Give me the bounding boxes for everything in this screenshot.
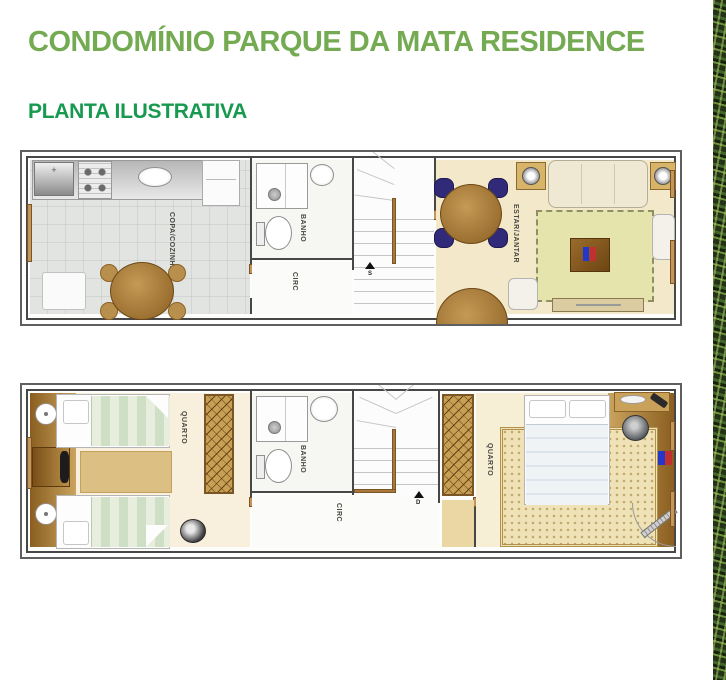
bedroom2-window	[670, 491, 675, 527]
floorplan-ground: COPA/COZINHA BANHO CIRC S	[20, 150, 682, 326]
stair-rail	[392, 198, 396, 264]
bedroom1-window	[27, 437, 32, 489]
kitchen-cabinet	[42, 272, 86, 310]
room-label-living: ESTAR/JANTAR	[512, 204, 519, 263]
chair	[180, 519, 206, 543]
wall	[250, 158, 252, 264]
stool	[622, 415, 649, 441]
vegetation-photo-strip	[713, 0, 726, 680]
laundry-tank	[34, 162, 74, 196]
shower-head	[268, 421, 281, 434]
stair-treads	[354, 437, 438, 495]
circulation-floor	[252, 495, 438, 547]
stair-down-label: D	[416, 500, 420, 506]
stove	[78, 161, 112, 199]
shower-box	[256, 163, 308, 209]
room-label-bedroom2: QUARTO	[486, 443, 493, 476]
stair-down-arrow-icon	[414, 491, 424, 498]
nightstand-lamp	[35, 503, 57, 525]
speaker-icon	[522, 167, 540, 185]
bedroom1-rug	[80, 451, 172, 493]
circulation-floor	[252, 262, 352, 314]
pillow	[569, 400, 606, 418]
sideboard	[552, 298, 644, 312]
dining-table	[440, 184, 502, 244]
double-bed	[524, 395, 610, 505]
room-label-bath: BANHO	[299, 214, 306, 242]
mirror	[620, 395, 646, 404]
room-label-kitchen: COPA/COZINHA	[168, 212, 175, 272]
closet-floor	[442, 500, 474, 547]
toilet	[265, 216, 292, 250]
fridge-cabinet	[202, 160, 240, 206]
bedspread	[526, 424, 608, 505]
wall	[252, 491, 352, 493]
sofa	[548, 160, 648, 208]
bedspread-fold	[146, 396, 168, 418]
stair-up-label: S	[368, 271, 372, 277]
tv-icon	[590, 247, 596, 261]
room-label-circ: CIRC	[291, 272, 298, 291]
room-label-bedroom1: QUARTO	[180, 411, 187, 444]
kitchen-table	[110, 262, 174, 320]
toilet-tank	[256, 222, 265, 246]
tv-icon	[658, 451, 665, 465]
nightstand-lamp	[35, 403, 57, 425]
room-label-bath: BANHO	[299, 445, 306, 473]
wall	[438, 391, 440, 503]
tv-icon	[60, 451, 69, 483]
page: CONDOMÍNIO PARQUE DA MATA RESIDENCE PLAN…	[0, 0, 726, 680]
bedroom2-window	[670, 421, 675, 451]
stair-up-arrow-icon	[365, 262, 375, 269]
tv-icon	[665, 451, 672, 465]
bathroom-sink	[310, 396, 338, 422]
living-window	[670, 240, 675, 284]
bathroom-sink	[310, 164, 334, 186]
kitchen-window	[27, 204, 32, 262]
living-window	[670, 170, 675, 198]
floorplan-upper: QUARTO BANHO CIRC D	[20, 383, 682, 559]
room-label-circ: CIRC	[335, 503, 342, 522]
pillow	[63, 400, 89, 424]
toilet	[265, 449, 292, 483]
wardrobe	[204, 394, 234, 494]
wardrobe	[442, 394, 474, 496]
pillow	[63, 521, 89, 545]
page-title: CONDOMÍNIO PARQUE DA MATA RESIDENCE	[28, 26, 645, 59]
bedspread-fold	[146, 525, 168, 547]
shower-head	[268, 188, 281, 201]
shower-box	[256, 396, 308, 442]
page-subtitle: PLANTA ILUSTRATIVA	[28, 100, 247, 124]
armchair	[508, 278, 538, 310]
stair-rail	[392, 429, 396, 491]
dining-chair	[168, 302, 186, 320]
tv-icon	[583, 247, 589, 261]
wall	[252, 258, 352, 260]
stair-rail	[354, 489, 396, 493]
toilet-tank	[256, 455, 265, 479]
kitchen-sink	[138, 167, 172, 187]
wall	[250, 391, 252, 497]
pillow	[529, 400, 566, 418]
twin-bed	[56, 495, 170, 549]
twin-bed	[56, 394, 170, 448]
